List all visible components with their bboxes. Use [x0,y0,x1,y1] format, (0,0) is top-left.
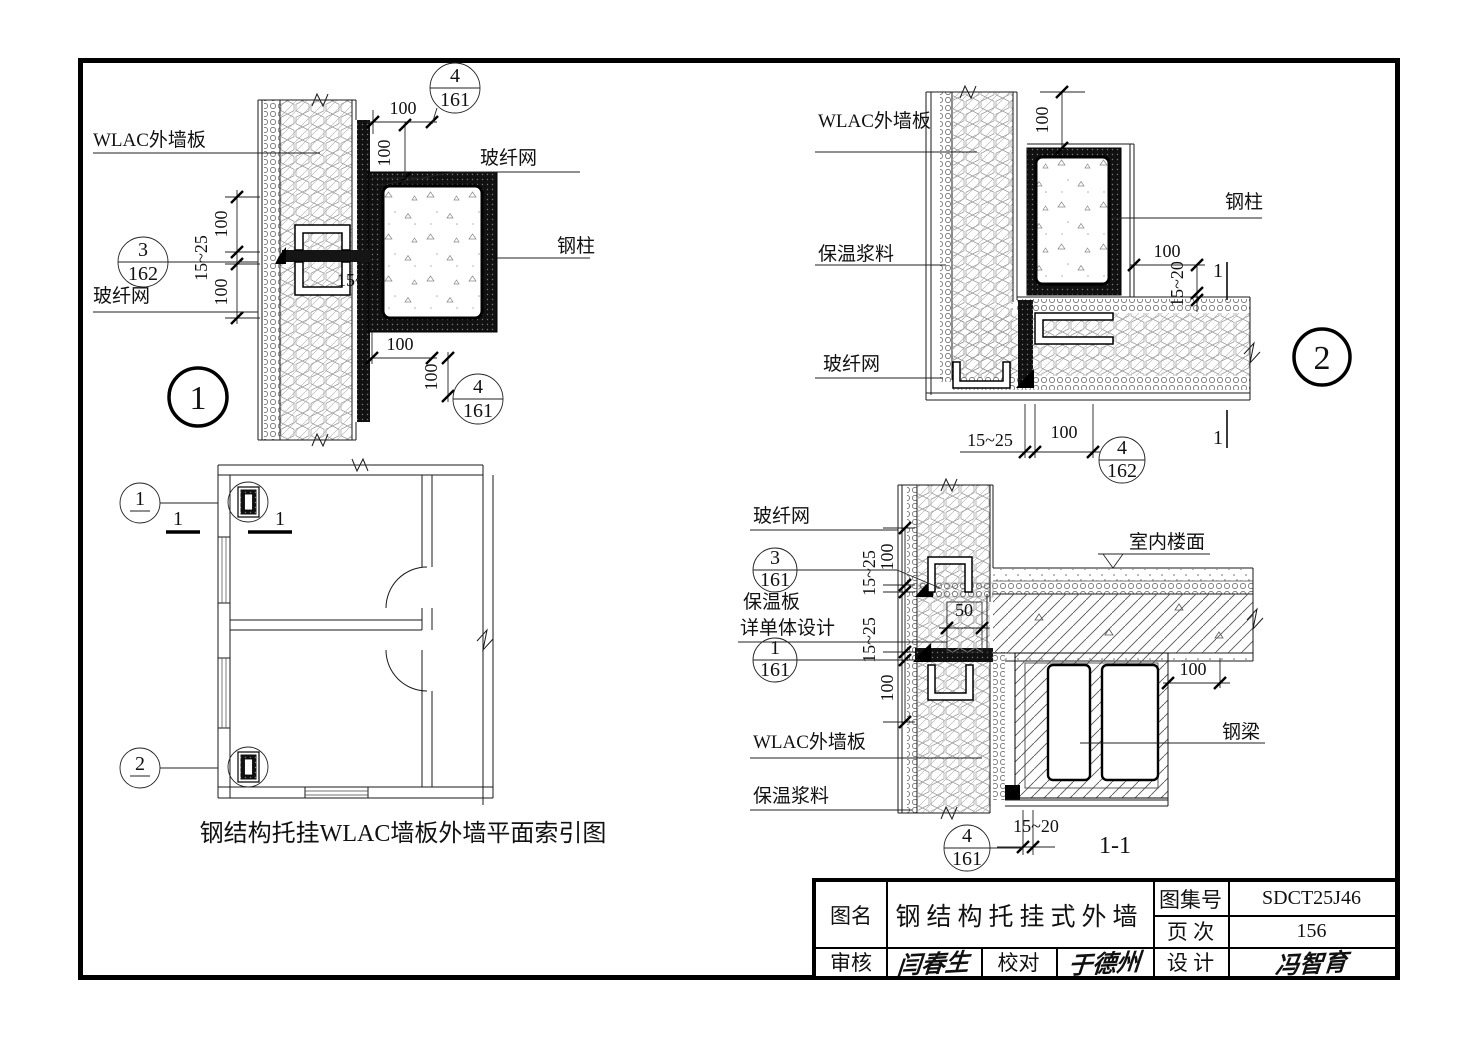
detail-1-drawing: 100 100 4 161 100 15~25 100 15~20 [85,62,590,462]
section-cut-label: 1 [1213,427,1223,449]
section-caption: 1-1 [1099,833,1131,859]
dim-50: 50 [955,600,973,620]
ref-num: 4 [473,376,483,398]
label-fiberglass-mesh: 玻纤网 [93,285,150,307]
label-insulation-mortar: 保温浆料 [753,785,829,807]
plan-ref-circle-2: 2 [120,748,218,788]
dim-100: 100 [877,544,897,571]
ref-num: 1 [770,637,780,659]
insulation-board-block: 50 [939,594,990,653]
label-fiberglass-mesh: 玻纤网 [480,147,537,169]
detail-number-2: 2 [1294,329,1350,385]
dim-15-20: 15~20 [337,270,383,290]
door-swing [386,650,427,691]
page-label: 页 次 [1153,915,1228,947]
label-wlac-panel: WLAC外墙板 [818,110,931,132]
svg-text:2: 2 [135,753,145,775]
section-dim-left: 100 15~25 15~25 100 [859,522,915,728]
dim-100: 100 [1051,422,1078,442]
section-cut-label: 1 [1213,260,1223,282]
dim-15-25: 15~25 [191,235,211,281]
label-steel-column: 钢柱 [1225,191,1263,213]
proof-label: 校对 [981,947,1056,976]
section-steel-beam [993,652,1168,806]
svg-text:1: 1 [190,380,207,417]
detail-2-drawing: 100 100 15~20 1 1 15~25 100 [800,72,1370,487]
detail1-steel-column [368,172,497,332]
detail2-steel-column [1027,144,1134,297]
detail2-dim-bottom: 15~25 100 [960,404,1100,458]
section-dim-right: 100 [1162,658,1230,689]
dim-100: 100 [421,364,441,391]
plan-ref-circle-1: 1 [120,483,218,523]
svg-text:1: 1 [173,508,183,530]
svg-text:1: 1 [275,508,285,530]
label-fiberglass-mesh: 玻纤网 [823,353,880,375]
label-indoor-floor: 室内楼面 [1129,531,1205,553]
plan-column-top [228,482,268,522]
review-label: 审核 [816,947,886,976]
ref-page: 162 [128,263,158,285]
dim-15-25: 15~25 [967,430,1013,450]
fig-name: 钢结构托挂式外墙 [886,882,1153,947]
dim-100: 100 [1032,107,1052,134]
atlas-number: SDCT25J46 [1228,882,1395,915]
dim-100: 100 [390,98,417,118]
ref-page: 161 [952,848,982,870]
detail1-dim-top: 100 100 [367,98,438,184]
ref-circle-4-161-section: 4 161 [944,825,1023,871]
ref-page: 161 [760,569,790,591]
ref-page: 161 [760,659,790,681]
atlas-label: 图集号 [1153,882,1228,915]
window-symbol [218,537,230,603]
label-wlac-panel: WLAC外墙板 [93,129,206,151]
section-1-1-panel: 室内楼面 50 [735,470,1280,870]
door-swing [386,567,427,608]
design-label: 设 计 [1153,947,1228,976]
ref-num: 3 [138,239,148,261]
dim-100: 100 [1180,659,1207,679]
dim-100: 100 [374,140,394,167]
window-symbol [218,658,230,728]
dim-15-25: 15~25 [859,617,879,663]
dim-100: 100 [387,334,414,354]
detail-1-panel: 100 100 4 161 100 15~25 100 15~20 [85,62,590,462]
plan-column-bottom [228,747,268,787]
ref-num: 3 [770,547,780,569]
ref-num: 4 [1117,437,1127,459]
page-number: 156 [1228,915,1395,947]
plan-caption: 钢结构托挂WLAC墙板外墙平面索引图 [200,820,607,847]
svg-text:2: 2 [1314,340,1331,377]
svg-text:1: 1 [135,488,145,510]
label-steel-beam: 钢梁 [1222,721,1260,743]
section-floor-slab [993,568,1263,661]
drawing-sheet: 100 100 4 161 100 15~25 100 15~20 [0,0,1477,1039]
review-signature: 闫春生 [885,944,982,978]
plan-drawing: 1 2 1 1 钢结构托挂WLAC墙板外墙平面索引图 [108,455,608,850]
ref-num: 4 [962,825,972,847]
label-insulation-board-note: 详单体设计 [740,617,835,639]
label-insulation-board: 保温板 [743,591,800,613]
dim-100: 100 [211,211,231,238]
ref-num: 4 [450,65,460,87]
label-insulation-mortar: 保温浆料 [818,243,894,265]
dim-15-20: 15~20 [1167,261,1187,307]
title-block: 图名 钢结构托挂式外墙 图集号 SDCT25J46 页 次 156 审核 闫春生… [812,878,1399,980]
window-symbol [305,787,368,798]
label-steel-column: 钢柱 [557,235,595,257]
detail-2-panel: 100 100 15~20 1 1 15~25 100 [800,72,1370,487]
ref-page: 161 [463,400,493,422]
plan-panel: 1 2 1 1 钢结构托挂WLAC墙板外墙平面索引图 [108,455,608,850]
ref-circle-4-161-bottom: 4 161 [453,374,503,424]
fig-name-label: 图名 [816,882,886,947]
proof-signature: 于德州 [1055,944,1154,978]
dim-15-20: 15~20 [1013,816,1059,836]
detail-number-1: 1 [169,368,227,426]
dim-100: 100 [211,279,231,306]
ref-page: 161 [440,89,470,111]
detail1-dim-bottom: 100 100 [366,332,454,402]
level-marker: 室内楼面 [1098,531,1210,568]
section-1-1-drawing: 室内楼面 50 [735,470,1280,870]
plan-section-cut: 1 1 [166,508,292,532]
detail1-dim-left: 100 15~25 100 [191,190,260,324]
label-fiberglass-mesh: 玻纤网 [753,505,810,527]
dim-100: 100 [1154,241,1181,261]
dim-100: 100 [877,675,897,702]
label-wlac-panel: WLAC外墙板 [753,731,866,753]
ref-circle-4-161-top: 4 161 [430,63,480,113]
dim-15-25: 15~25 [859,550,879,596]
